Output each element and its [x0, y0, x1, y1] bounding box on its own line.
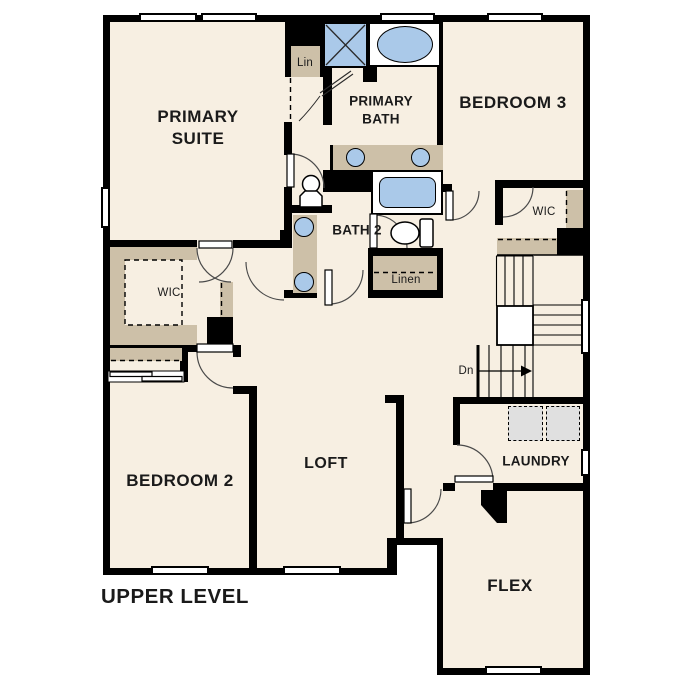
- wall: [437, 538, 443, 675]
- shower: [323, 22, 368, 68]
- wall: [495, 180, 503, 225]
- dryer: [546, 406, 580, 441]
- wall: [437, 250, 443, 297]
- primary-suite-label: SUITE: [172, 129, 225, 149]
- primary-wic-shelf: [110, 325, 197, 345]
- window: [101, 187, 110, 228]
- wall: [207, 317, 233, 345]
- exterior-notch: [397, 545, 437, 575]
- wall: [368, 248, 443, 256]
- wall: [453, 397, 583, 404]
- bathtub-oval: [377, 26, 433, 63]
- wall: [368, 290, 443, 298]
- wall: [284, 122, 292, 155]
- washer: [508, 406, 543, 441]
- bedroom3-label: BEDROOM 3: [459, 93, 566, 113]
- primary-wic-shelf: [220, 282, 233, 317]
- floor-plan: PRIMARY SUITE PRIMARY BATH BEDROOM 3 WIC…: [0, 0, 687, 687]
- wall: [493, 483, 583, 491]
- window: [485, 666, 542, 675]
- wic-primary-label: WIC: [158, 287, 181, 299]
- window: [581, 449, 590, 476]
- sink: [294, 272, 314, 292]
- window: [151, 566, 209, 575]
- wall: [233, 345, 241, 357]
- wall: [443, 184, 452, 192]
- stairs-dn-label: Dn: [458, 365, 473, 377]
- loft-label: LOFT: [304, 455, 348, 473]
- flex-label: FLEX: [487, 576, 532, 596]
- window: [380, 13, 435, 22]
- bedroom2-label: BEDROOM 2: [126, 471, 233, 491]
- window: [283, 566, 341, 575]
- bedroom2-closet-shelf: [110, 348, 182, 361]
- bath2-tub: [379, 177, 436, 208]
- wall: [323, 68, 332, 125]
- lin-label: Lin: [297, 57, 313, 69]
- laundry-label: LAUNDRY: [502, 454, 570, 469]
- wall: [249, 386, 257, 575]
- window: [487, 13, 543, 22]
- bedroom3-wic-shelf: [566, 190, 583, 228]
- window: [139, 13, 197, 22]
- primary-bath-label: BATH: [362, 112, 400, 127]
- bedroom3-wic-shelf: [497, 238, 557, 255]
- bath2-label: BATH 2: [332, 223, 382, 238]
- window: [581, 299, 590, 354]
- sink: [346, 148, 365, 167]
- wall: [396, 395, 404, 540]
- sink: [294, 217, 314, 237]
- primary-suite-label: PRIMARY: [157, 107, 238, 127]
- wall: [280, 230, 292, 248]
- sink: [411, 148, 430, 167]
- wall: [495, 180, 583, 188]
- linen-label: Linen: [391, 274, 420, 286]
- wic-bedroom3-label: WIC: [533, 206, 556, 218]
- wall: [443, 483, 455, 491]
- primary-bath-label: PRIMARY: [349, 94, 413, 109]
- level-title: UPPER LEVEL: [101, 585, 249, 609]
- wall: [453, 397, 460, 445]
- wall: [323, 170, 373, 192]
- wall: [557, 228, 583, 255]
- wall: [103, 15, 110, 575]
- window: [201, 13, 257, 22]
- wall: [284, 205, 332, 213]
